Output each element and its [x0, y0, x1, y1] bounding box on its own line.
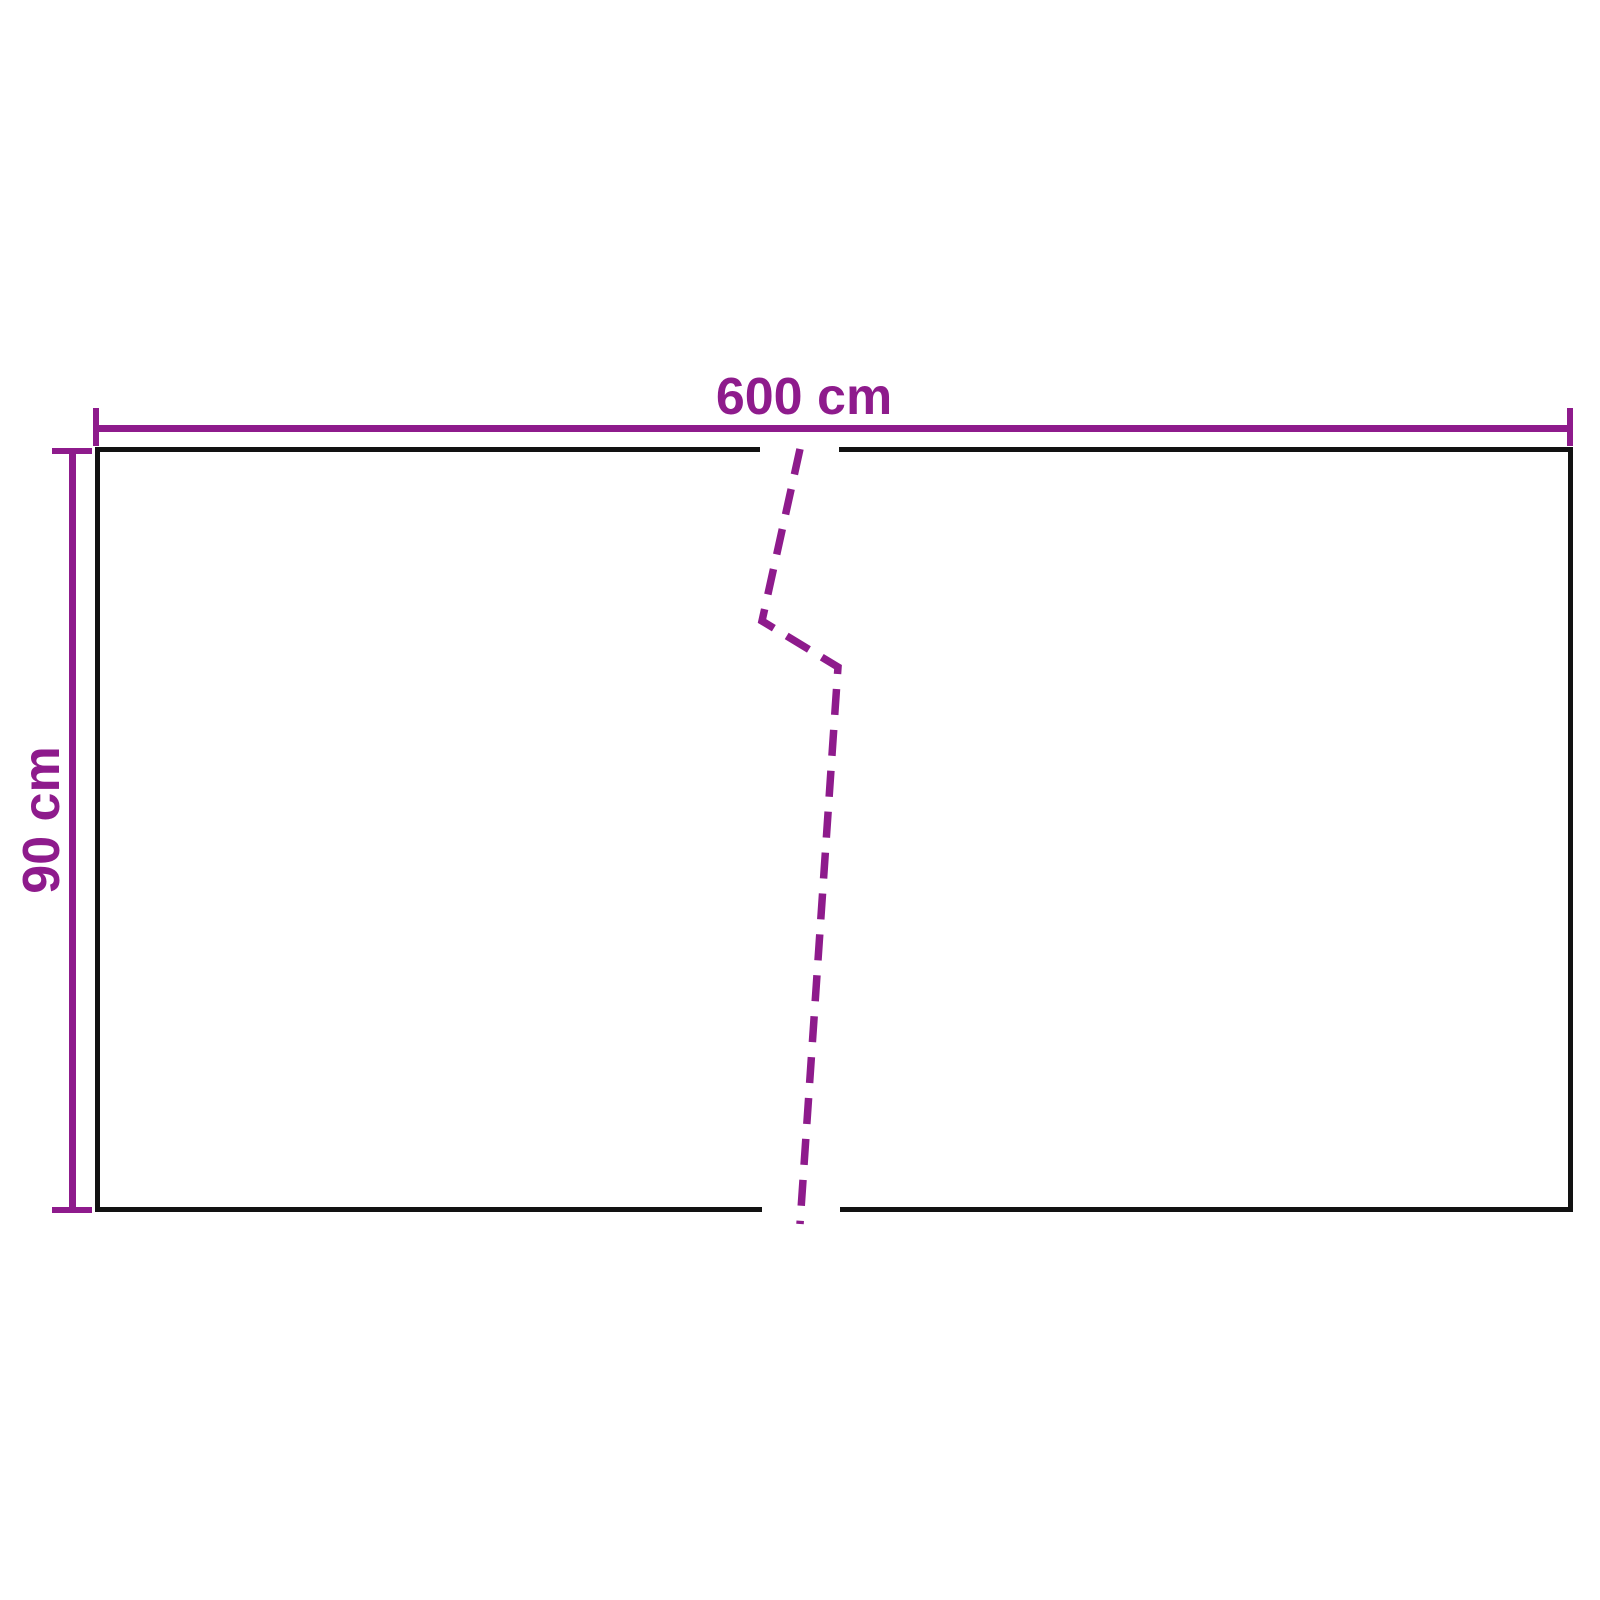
- height-dimension-tick-bottom: [52, 1207, 92, 1213]
- dimension-diagram: 600 cm 90 cm: [0, 0, 1600, 1600]
- width-dimension-tick-right: [1567, 408, 1573, 446]
- height-dimension-tick-top: [52, 448, 92, 454]
- width-dimension-tick-left: [93, 408, 99, 446]
- break-line: [0, 0, 1600, 1600]
- width-dimension-line: [95, 425, 1572, 432]
- width-label: 600 cm: [604, 371, 1004, 423]
- height-label: 90 cm: [16, 746, 68, 893]
